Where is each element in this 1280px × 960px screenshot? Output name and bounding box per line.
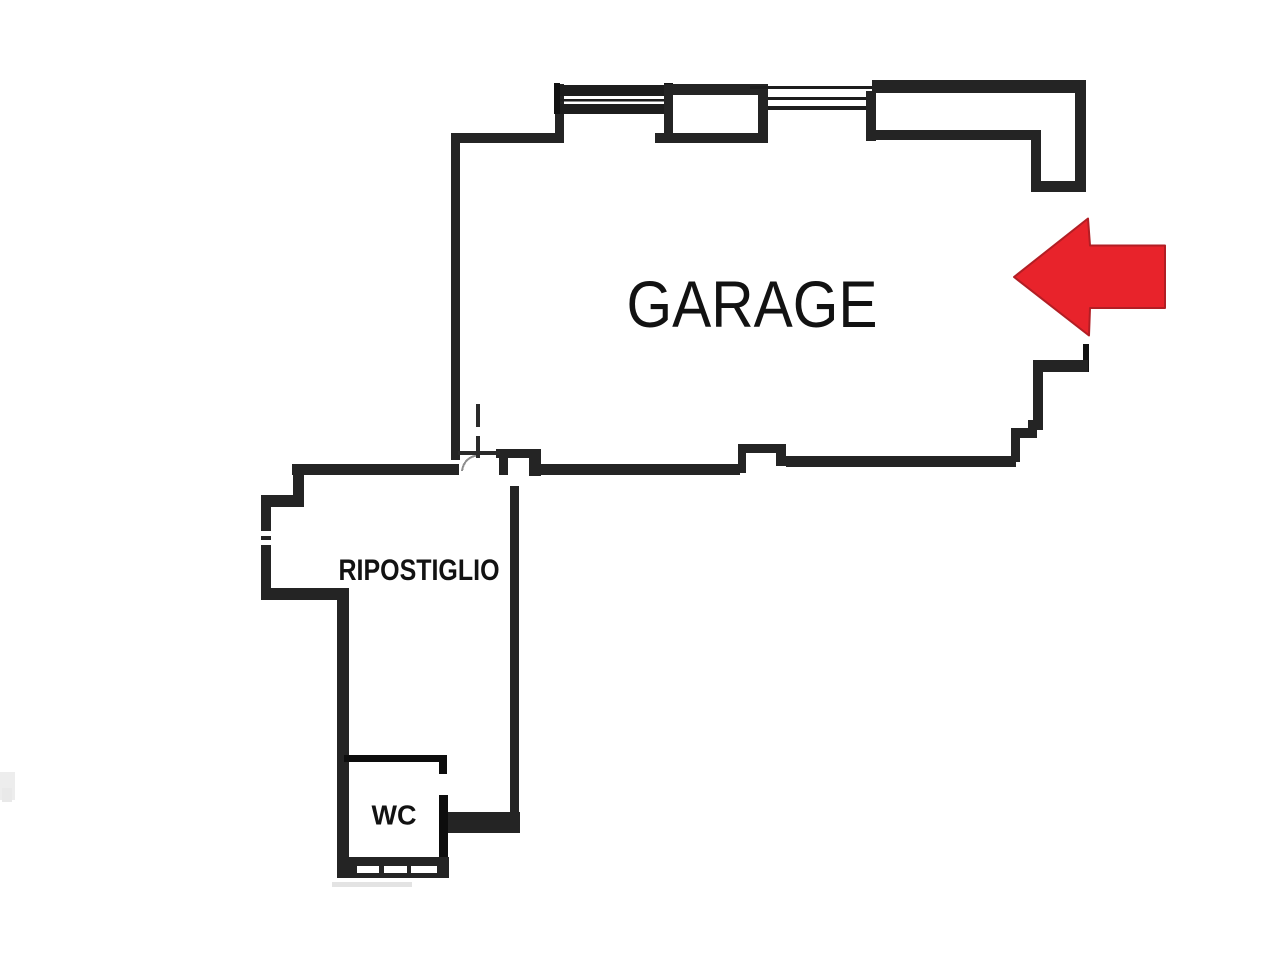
svg-text:RIPOSTIGLIO: RIPOSTIGLIO	[339, 554, 500, 587]
svg-text:GARAGE: GARAGE	[627, 267, 878, 341]
svg-text:WC: WC	[372, 800, 417, 831]
